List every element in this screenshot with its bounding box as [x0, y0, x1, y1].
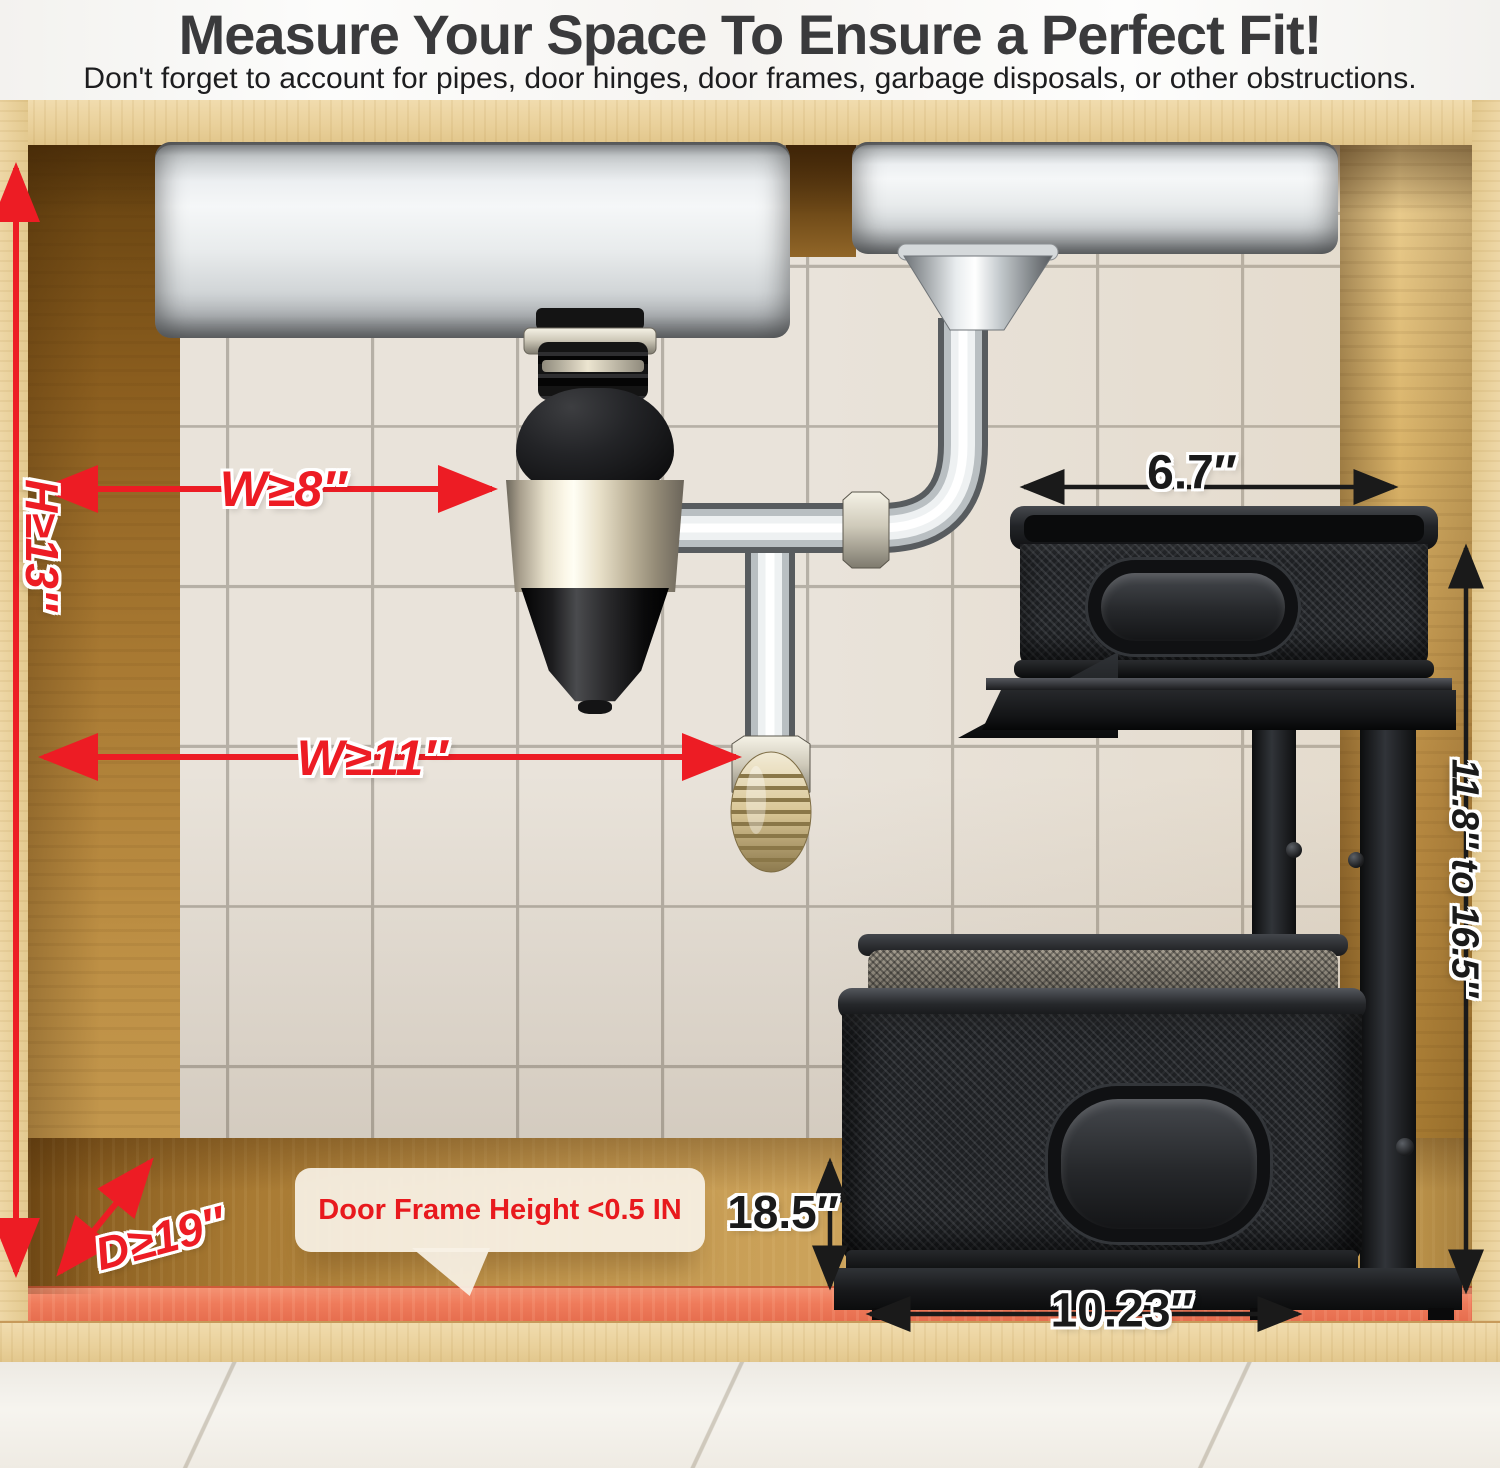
- label-basket-height: 18.5″: [727, 1185, 839, 1239]
- label-width-min-8: W≥8″: [220, 460, 346, 518]
- door-frame-note: Door Frame Height <0.5 IN: [318, 1194, 681, 1227]
- label-top-basket-depth: 6.7″: [1147, 446, 1237, 501]
- door-frame-bubble: Door Frame Height <0.5 IN: [295, 1168, 705, 1252]
- label-basket-width: 10.23″: [1050, 1284, 1193, 1339]
- label-height-min-13: H≥13″: [15, 479, 69, 611]
- label-rack-height-range: 11.8″ to 16.5″: [1443, 759, 1486, 997]
- label-width-min-11: W≥11″: [297, 729, 448, 787]
- infographic-root: Measure Your Space To Ensure a Perfect F…: [0, 0, 1500, 1468]
